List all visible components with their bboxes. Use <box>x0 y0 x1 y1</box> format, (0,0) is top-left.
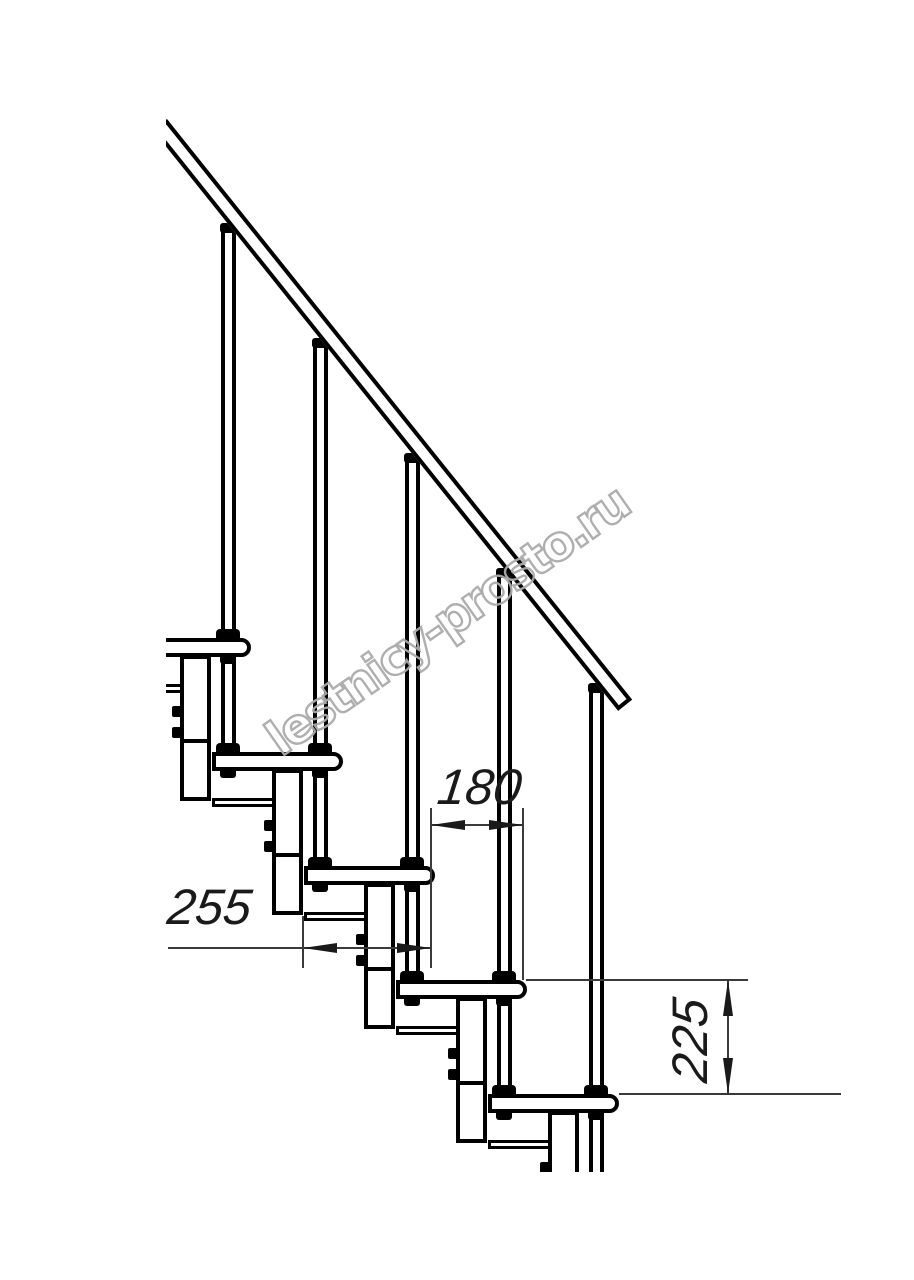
drawing-crop-bottom <box>0 1172 914 1280</box>
support-module-lug <box>172 706 181 717</box>
support-module-joint <box>274 853 301 857</box>
dim-180-label: 180 <box>434 758 525 816</box>
under-tread-nut <box>312 884 328 892</box>
baluster-foot-collar <box>400 857 424 867</box>
dim-225-refline-top <box>526 979 748 981</box>
dim-255-extension-left <box>302 916 304 968</box>
support-module-joint <box>366 967 393 971</box>
under-tread-nut <box>404 884 420 892</box>
tread <box>212 752 343 771</box>
under-tread-nut <box>496 998 512 1006</box>
support-post <box>405 883 420 980</box>
tread <box>488 1094 619 1113</box>
dim-225-arrow-down <box>723 1058 733 1094</box>
support-module-lug <box>356 955 365 966</box>
support-module-joint <box>458 1081 485 1085</box>
under-tread-nut <box>220 770 236 778</box>
baluster-foot-collar <box>584 1085 608 1095</box>
support-post <box>497 997 512 1094</box>
under-tread-nut <box>588 1112 604 1120</box>
dim-255-label: 255 <box>164 878 255 936</box>
support-post <box>313 769 328 866</box>
drawing-crop-left <box>0 0 166 1280</box>
staircase-technical-drawing: 180 255 225 lestnicy-prosto.ru <box>0 0 914 1280</box>
module-connector-tab <box>396 1026 459 1035</box>
under-tread-nut <box>220 656 236 664</box>
baluster <box>589 686 604 1094</box>
module-connector-tab <box>488 1140 551 1149</box>
dim-255-arrow-left <box>303 943 337 953</box>
module-connector-tab <box>304 912 367 921</box>
under-tread-nut <box>496 1112 512 1120</box>
dim-180-extension-right <box>522 808 524 980</box>
dim-225-label: 225 <box>663 977 717 1104</box>
tread <box>396 980 527 999</box>
dim-180-arrow-left <box>431 820 465 830</box>
module-connector-tab <box>212 798 275 807</box>
dim-180-arrow-right <box>489 820 523 830</box>
dim-255-arrow-right <box>397 943 431 953</box>
under-tread-nut <box>312 770 328 778</box>
dim-225-arrow-up <box>723 980 733 1016</box>
under-tread-nut <box>404 998 420 1006</box>
support-module-lug <box>448 1048 457 1059</box>
support-module-lug <box>356 934 365 945</box>
support-module <box>364 883 395 1029</box>
baluster-foot-collar <box>492 971 516 981</box>
support-module-lug <box>172 727 181 738</box>
support-module-lug <box>448 1069 457 1080</box>
support-post <box>221 655 236 752</box>
tread <box>304 866 435 885</box>
support-module <box>456 997 487 1143</box>
support-module-joint <box>182 739 209 743</box>
support-module <box>272 769 303 915</box>
support-module-lug <box>264 820 273 831</box>
support-module <box>180 655 211 801</box>
dim-255-line <box>168 947 431 949</box>
baluster-foot-collar <box>216 629 240 639</box>
support-module-lug <box>264 841 273 852</box>
baluster <box>221 226 236 638</box>
